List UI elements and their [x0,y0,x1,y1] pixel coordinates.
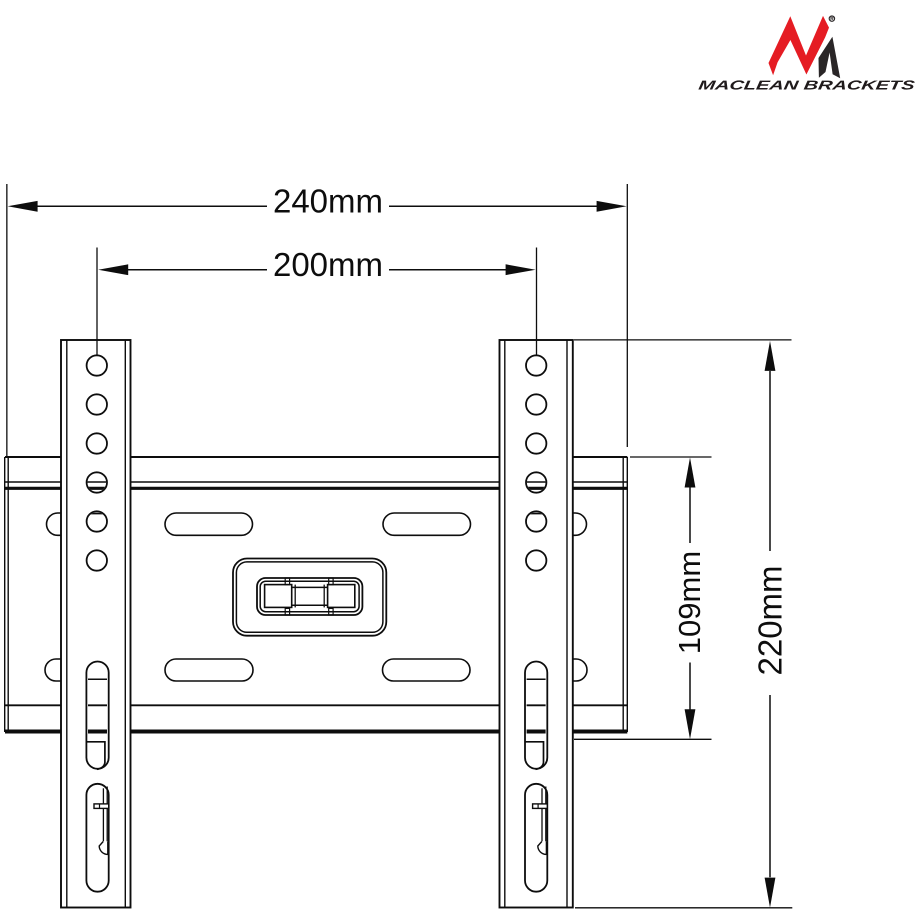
svg-text:MACLEAN BRACKETS: MACLEAN BRACKETS [698,78,917,93]
svg-text:240mm: 240mm [273,183,383,220]
svg-text:200mm: 200mm [273,246,383,283]
svg-text:220mm: 220mm [751,565,788,675]
svg-text:109mm: 109mm [672,551,707,654]
